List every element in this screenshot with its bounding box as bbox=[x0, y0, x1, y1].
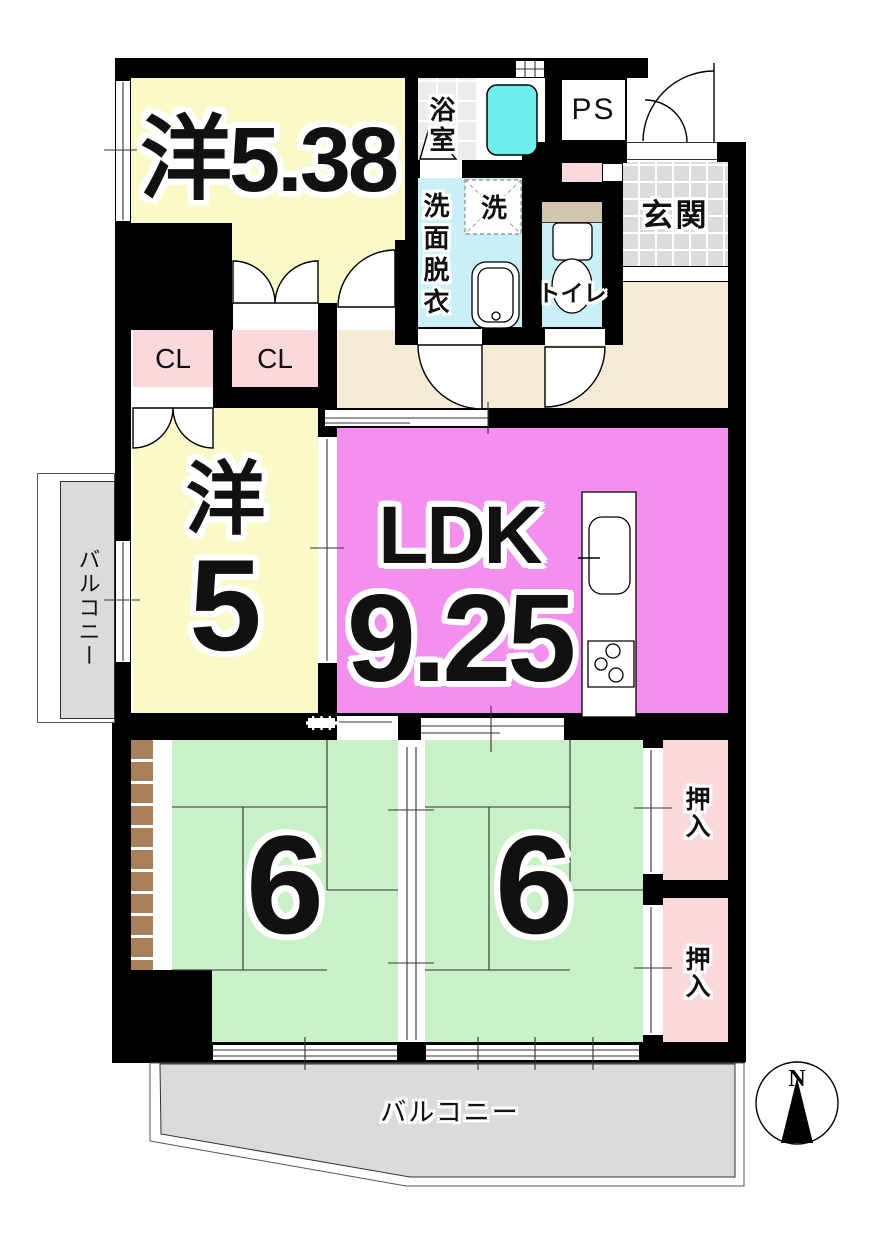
label-washer: 洗 bbox=[477, 191, 511, 225]
door-arc-toilet bbox=[545, 347, 605, 407]
label-balcony-left-text: バルコニー bbox=[77, 548, 99, 668]
floor-plan: N 洋5.38 浴室 洗 洗面脱衣 トイレ PS 玄関 CL CL 洋 5 LD… bbox=[0, 0, 879, 1233]
label-tatami-left: 6 bbox=[172, 790, 398, 980]
label-western-5: 洋 5 bbox=[133, 425, 318, 705]
door-arc-washroom bbox=[418, 345, 482, 409]
label-ldk-text: LDK bbox=[378, 495, 541, 577]
label-oshiire-bottom: 押入 bbox=[663, 925, 728, 1020]
label-ldk: LDK 9.25 bbox=[317, 492, 602, 704]
label-tatami-right: 6 bbox=[425, 790, 643, 980]
label-western-5-kanji: 洋 bbox=[186, 460, 266, 540]
compass-north-label: N bbox=[788, 1066, 806, 1092]
label-bath: 浴室 bbox=[424, 84, 458, 168]
label-western-538: 洋5.38 bbox=[131, 100, 405, 220]
label-washroom-text: 洗面脱衣 bbox=[422, 192, 448, 320]
label-pipe-space: PS bbox=[560, 78, 627, 142]
label-ldk-size: 9.25 bbox=[347, 577, 572, 701]
label-oshiire-top-text: 押入 bbox=[683, 786, 708, 840]
label-balcony-left: バルコニー bbox=[60, 528, 115, 688]
label-entrance: 玄関 bbox=[623, 168, 728, 263]
bathtub-icon bbox=[487, 85, 537, 155]
compass-north-icon: N bbox=[756, 1062, 838, 1144]
label-washroom: 洗面脱衣 bbox=[419, 180, 451, 332]
double-door-closet2-icon bbox=[233, 261, 318, 303]
door-arc-western538 bbox=[338, 250, 395, 307]
label-bath-text: 浴室 bbox=[428, 96, 454, 156]
label-oshiire-top: 押入 bbox=[663, 765, 728, 860]
entrance-door-icon bbox=[643, 63, 714, 142]
label-closet-1: CL bbox=[133, 332, 213, 386]
sink-icon bbox=[472, 262, 519, 328]
label-oshiire-bottom-text: 押入 bbox=[683, 946, 708, 1000]
label-western-5-size: 5 bbox=[189, 540, 261, 670]
label-toilet: トイレ bbox=[536, 278, 608, 308]
label-balcony-bottom: バルコニー bbox=[290, 1092, 610, 1132]
label-closet-2: CL bbox=[232, 332, 318, 386]
